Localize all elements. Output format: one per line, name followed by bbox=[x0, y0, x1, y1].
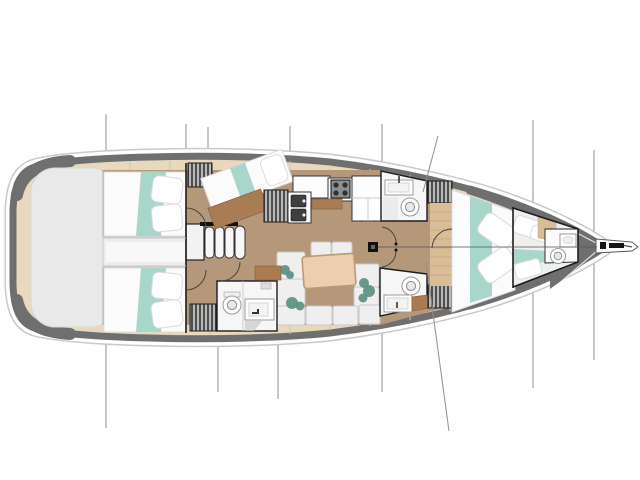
stove-icon bbox=[328, 178, 353, 201]
yacht-floor-plan bbox=[0, 0, 640, 480]
sofa-bench bbox=[333, 306, 358, 325]
anchor-roller bbox=[609, 243, 624, 248]
cabinet bbox=[412, 295, 428, 311]
toilet-icon bbox=[551, 249, 566, 264]
step bbox=[205, 227, 214, 258]
bathroom-sink bbox=[560, 234, 576, 247]
aft-head bbox=[217, 281, 277, 331]
pillow bbox=[150, 299, 183, 329]
hanging-locker bbox=[428, 181, 452, 203]
step bbox=[215, 227, 224, 258]
vent bbox=[261, 283, 271, 289]
hanging-locker bbox=[264, 190, 288, 222]
bowsprit bbox=[596, 239, 638, 253]
refrigerator bbox=[352, 176, 383, 221]
step bbox=[225, 227, 234, 258]
anchor-roller bbox=[600, 242, 606, 249]
sofa-bench bbox=[306, 306, 332, 325]
salon-table bbox=[302, 253, 356, 289]
bed-runner bbox=[470, 196, 492, 303]
settee-backrest bbox=[311, 242, 331, 256]
sofa-bench bbox=[359, 305, 380, 324]
toilet-icon bbox=[401, 198, 419, 216]
pillow bbox=[151, 204, 183, 233]
galley-sinks bbox=[288, 192, 311, 223]
counter-top bbox=[312, 199, 342, 209]
cabinet bbox=[255, 266, 281, 280]
bow-head bbox=[545, 229, 578, 264]
pillow bbox=[150, 175, 183, 205]
forward-head-starboard bbox=[380, 268, 428, 316]
engine-compartment bbox=[103, 237, 186, 267]
stern-swim-platform bbox=[31, 168, 115, 327]
bathroom-sink bbox=[245, 299, 274, 320]
step bbox=[235, 226, 245, 259]
bathroom-sink bbox=[384, 295, 412, 312]
pillow bbox=[151, 272, 183, 301]
cabin-floor bbox=[430, 203, 455, 286]
hanging-locker bbox=[190, 304, 216, 331]
toilet-icon bbox=[402, 277, 420, 295]
floor-plan-drawing bbox=[0, 0, 640, 480]
shower-floor bbox=[383, 197, 398, 220]
toilet-icon bbox=[223, 292, 241, 314]
